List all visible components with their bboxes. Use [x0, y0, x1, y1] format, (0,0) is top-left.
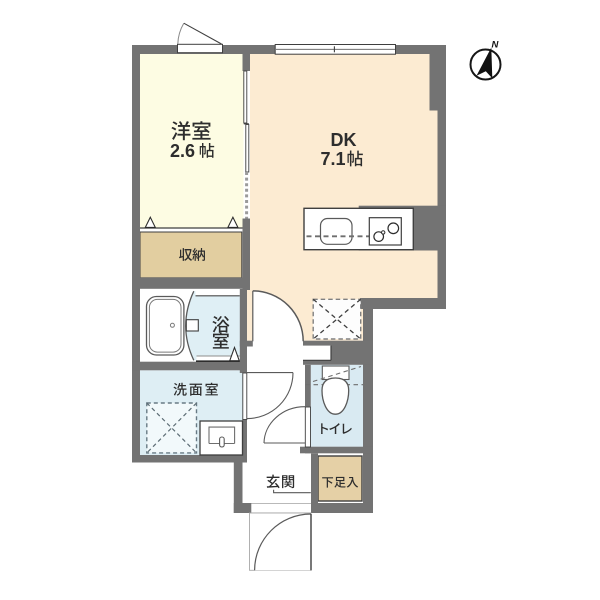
svg-text:7.1: 7.1 [321, 149, 346, 169]
svg-text:N: N [492, 40, 500, 51]
svg-text:DK: DK [331, 130, 357, 150]
svg-text:2.6: 2.6 [170, 141, 195, 161]
